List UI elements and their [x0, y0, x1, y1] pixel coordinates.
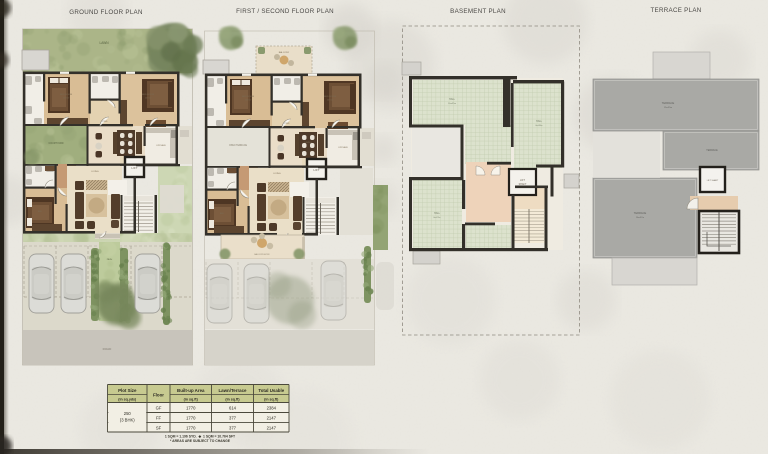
svg-text:1 SQM = 1.196 SYD. ◆ 1 SQM =: 1 SQM = 1.196 SYD. ◆ 1 SQM = 10.764 SFT — [165, 434, 236, 438]
svg-text:2147: 2147 — [267, 415, 277, 420]
svg-text:LIVING: LIVING — [273, 173, 280, 175]
svg-text:BED ROOM: BED ROOM — [324, 96, 336, 98]
svg-text:PWD: PWD — [103, 121, 108, 123]
svg-text:Floor: Floor — [153, 393, 164, 398]
svg-text:10mX7m: 10mX7m — [636, 217, 645, 219]
svg-text:6mX7m: 6mX7m — [434, 217, 441, 219]
svg-text:Plot Size: Plot Size — [118, 388, 137, 393]
svg-text:LIVING: LIVING — [91, 171, 98, 173]
svg-text:BED: BED — [220, 213, 225, 215]
svg-text:BED ROOM: BED ROOM — [242, 96, 254, 98]
svg-text:KITCHEN: KITCHEN — [156, 145, 166, 147]
svg-text:377: 377 — [229, 425, 237, 430]
svg-text:6mX8m: 6mX8m — [536, 125, 543, 127]
svg-text:(in sq.yds): (in sq.yds) — [118, 398, 137, 402]
svg-text:2384: 2384 — [267, 406, 277, 411]
svg-text:ROAD: ROAD — [103, 347, 113, 351]
svg-text:12mX5m: 12mX5m — [664, 107, 673, 109]
svg-text:1770: 1770 — [186, 406, 196, 411]
svg-text:BED ROOM: BED ROOM — [142, 94, 154, 96]
svg-text:250: 250 — [124, 411, 132, 416]
svg-text:1770: 1770 — [186, 425, 196, 430]
svg-text:614: 614 — [229, 406, 237, 411]
svg-text:DINING: DINING — [304, 142, 312, 144]
svg-text:PATH: PATH — [107, 258, 113, 261]
svg-text:BED: BED — [38, 211, 43, 213]
svg-text:OPEN TERRACE: OPEN TERRACE — [229, 144, 248, 147]
svg-text:Lawn/Terrace: Lawn/Terrace — [219, 388, 248, 393]
svg-text:TERRACE: TERRACE — [662, 101, 675, 105]
svg-text:BASEMENT PLAN: BASEMENT PLAN — [450, 8, 506, 15]
svg-text:FF: FF — [156, 415, 162, 420]
svg-text:LIFT SHAFT: LIFT SHAFT — [707, 179, 719, 182]
svg-text:KITCHEN: KITCHEN — [338, 147, 348, 149]
svg-text:GF: GF — [156, 406, 162, 411]
svg-text:LIFT: LIFT — [313, 168, 319, 172]
svg-text:TERRACE: TERRACE — [706, 149, 718, 152]
svg-text:FIRST / SECOND FLOOR PLAN: FIRST / SECOND FLOOR PLAN — [236, 8, 334, 15]
svg-text:12'X11': 12'X11' — [327, 100, 334, 102]
svg-text:* AREAS ARE SUBJECT TO CHANGE: * AREAS ARE SUBJECT TO CHANGE — [170, 439, 231, 443]
svg-text:HALL: HALL — [449, 98, 456, 101]
svg-text:(in sq.ft): (in sq.ft) — [184, 398, 199, 402]
svg-text:12'X11': 12'X11' — [145, 98, 152, 100]
svg-text:1770: 1770 — [186, 415, 196, 420]
svg-text:SF: SF — [156, 425, 162, 430]
svg-text:377: 377 — [229, 415, 237, 420]
svg-text:BALCONY: BALCONY — [279, 51, 290, 54]
svg-text:BED ROOM: BED ROOM — [60, 94, 72, 96]
svg-text:(3 BHK): (3 BHK) — [120, 418, 135, 423]
svg-text:Total Usable: Total Usable — [258, 388, 284, 393]
svg-text:LAWN: LAWN — [99, 41, 109, 45]
svg-text:10mX5m: 10mX5m — [448, 103, 456, 105]
svg-text:HALL: HALL — [434, 212, 441, 215]
svg-text:TERRACE PLAN: TERRACE PLAN — [650, 7, 701, 14]
svg-text:LIFT: LIFT — [131, 166, 137, 170]
svg-text:HALL: HALL — [536, 120, 543, 123]
svg-text:(in sq.ft): (in sq.ft) — [225, 398, 240, 402]
svg-text:(in sq.ft): (in sq.ft) — [264, 398, 279, 402]
svg-text:PWD: PWD — [285, 123, 290, 125]
svg-text:2147: 2147 — [267, 425, 277, 430]
svg-text:TERRACE: TERRACE — [634, 211, 647, 215]
svg-text:GROUND FLOOR PLAN: GROUND FLOOR PLAN — [69, 9, 143, 16]
svg-text:BALCONY AT FF: BALCONY AT FF — [254, 253, 270, 256]
svg-text:Built-up Area: Built-up Area — [177, 388, 205, 393]
svg-text:DINING: DINING — [122, 140, 130, 142]
svg-text:10'X12': 10'X12' — [63, 98, 70, 100]
svg-text:COURTYARD: COURTYARD — [49, 142, 64, 145]
svg-text:LIFT: LIFT — [520, 179, 525, 182]
svg-text:10'X12': 10'X12' — [245, 100, 252, 102]
